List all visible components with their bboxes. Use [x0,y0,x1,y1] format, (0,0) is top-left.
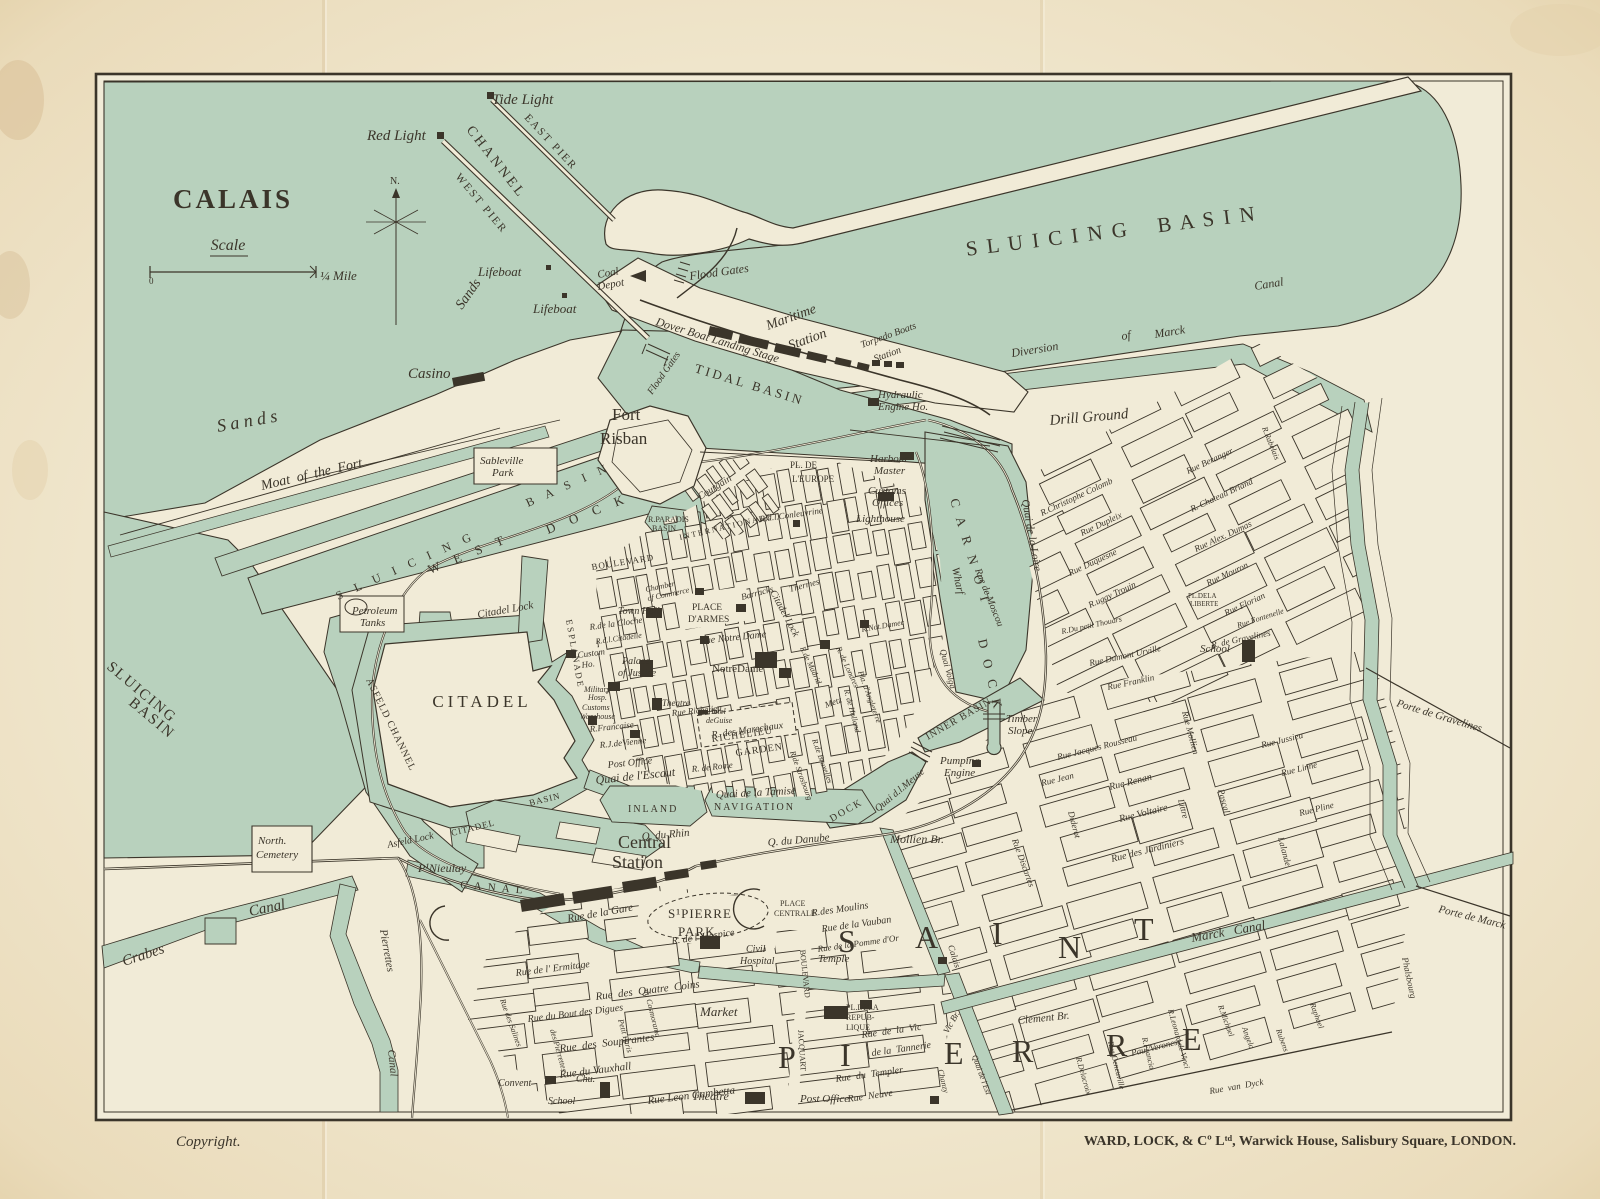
svg-text:WARD, LOCK, & Cº Lᵗᵈ, Warwick: WARD, LOCK, & Cº Lᵗᵈ, Warwick House, Sal… [1084,1134,1516,1149]
svg-text:S¹PIERRE: S¹PIERRE [668,906,732,921]
svg-text:Theatre: Theatre [692,1089,730,1103]
svg-text:Temple: Temple [818,953,849,965]
svg-text:Hosp.: Hosp. [587,693,607,702]
svg-text:P: P [778,1039,796,1075]
svg-text:of Justice: of Justice [618,668,657,679]
svg-text:REPUB-: REPUB- [846,1013,875,1022]
svg-text:Park: Park [491,467,515,479]
svg-text:Offices: Offices [872,497,903,509]
svg-text:School: School [548,1096,575,1107]
svg-text:¼ Mile: ¼ Mile [320,268,357,283]
svg-text:Scale: Scale [211,237,246,254]
svg-text:Post Office: Post Office [799,1093,849,1105]
svg-text:PLACE: PLACE [780,899,805,908]
svg-text:School: School [1200,643,1230,655]
svg-text:Fort: Fort [612,405,641,424]
svg-text:Hospital: Hospital [739,956,775,967]
svg-text:PLACE: PLACE [692,603,722,613]
svg-text:Lifeboat: Lifeboat [532,301,577,316]
svg-text:I: I [992,915,1003,951]
svg-text:Customs: Customs [868,485,906,497]
svg-text:Petroleum: Petroleum [351,605,397,617]
svg-text:Timber: Timber [1006,713,1038,725]
svg-text:Red Light: Red Light [366,128,427,144]
svg-text:Mollien Br.: Mollien Br. [889,832,944,846]
svg-text:Risban: Risban [600,429,648,448]
svg-text:R: R [1012,1033,1034,1069]
svg-text:Engine Ho.: Engine Ho. [877,401,928,413]
svg-text:D'ARMES: D'ARMES [688,615,729,625]
svg-text:Pumping: Pumping [939,755,980,767]
svg-text:Lifeboat: Lifeboat [477,264,522,279]
svg-text:Cemetery: Cemetery [256,849,298,861]
svg-text:Central: Central [618,832,671,852]
svg-text:Harbour: Harbour [869,453,909,465]
svg-text:R.PARADIS: R.PARADIS [648,515,689,524]
svg-text:Casino: Casino [408,366,451,382]
svg-text:Chu.: Chu. [576,1074,595,1085]
svg-text:A: A [915,919,938,955]
svg-text:E: E [944,1035,964,1071]
svg-text:Lighthouse: Lighthouse [855,513,905,525]
svg-text:I: I [840,1037,851,1073]
svg-text:Copyright.: Copyright. [176,1134,241,1150]
svg-text:R: R [1106,1027,1128,1063]
svg-text:CENTRALE: CENTRALE [774,909,816,918]
svg-text:E: E [1182,1021,1202,1057]
svg-text:Palace: Palace [621,656,650,667]
svg-text:N: N [1058,929,1081,965]
svg-text:Customs: Customs [582,703,610,712]
svg-text:LIBERTE: LIBERTE [1190,600,1218,608]
svg-text:Station: Station [612,852,663,872]
svg-text:Market: Market [699,1004,738,1019]
svg-text:Engine: Engine [943,767,975,779]
svg-text:N.: N. [390,176,400,187]
svg-text:deGuise: deGuise [706,716,733,725]
svg-text:Convent: Convent [498,1078,532,1089]
svg-text:Warehouse: Warehouse [580,712,615,721]
svg-text:North.: North. [257,835,286,847]
svg-text:CITADEL: CITADEL [432,692,531,711]
svg-text:Tide Light: Tide Light [492,92,554,108]
svg-text:Sableville: Sableville [480,455,523,467]
svg-text:Tanks: Tanks [360,617,385,629]
svg-text:T: T [1134,911,1154,947]
svg-text:0: 0 [149,276,154,286]
svg-text:Master: Master [873,465,906,477]
svg-text:NotreDame: NotreDame [712,663,763,675]
svg-text:CALAIS: CALAIS [173,184,293,214]
svg-text:Slope: Slope [1008,725,1033,737]
svg-text:L'EUROPE: L'EUROPE [792,474,835,484]
svg-text:Hydraulic: Hydraulic [877,389,923,401]
svg-text:P¹Nieulay: P¹Nieulay [417,861,467,875]
svg-text:INLAND: INLAND [628,804,678,815]
svg-text:NAVIGATION: NAVIGATION [714,802,795,813]
svg-text:PL.DELA: PL.DELA [1188,592,1217,600]
svg-text:PL. DE: PL. DE [790,460,818,470]
svg-text:Civil: Civil [746,944,766,955]
svg-text:BASIN: BASIN [652,524,676,533]
svg-text:PL.DELA: PL.DELA [846,1003,879,1012]
